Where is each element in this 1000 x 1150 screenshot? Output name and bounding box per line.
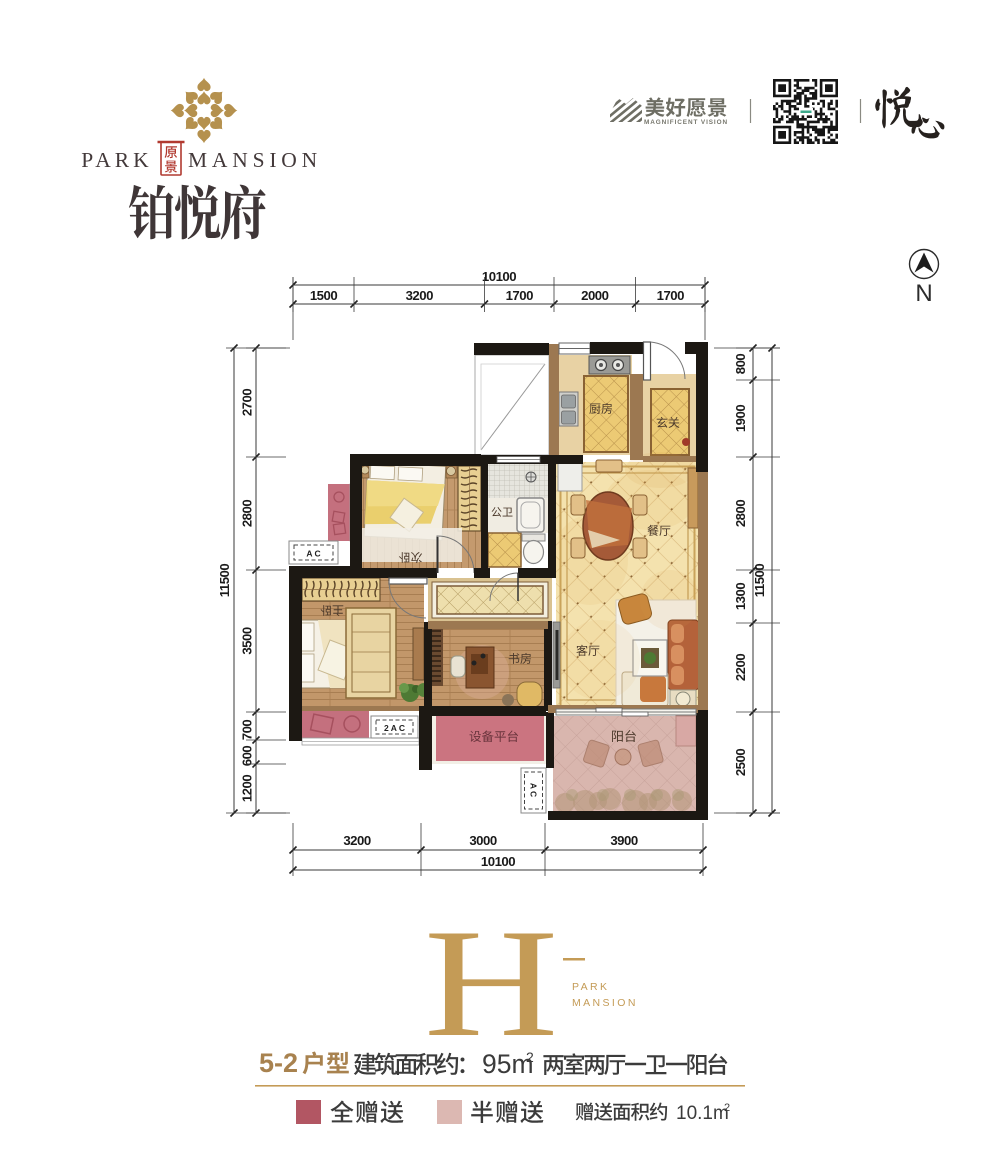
svg-text:1300: 1300 [733, 583, 748, 611]
svg-text:3200: 3200 [406, 288, 434, 303]
svg-text:10100: 10100 [481, 854, 515, 869]
svg-text:A C: A C [529, 783, 539, 797]
svg-text:1700: 1700 [657, 288, 685, 303]
svg-text:1900: 1900 [733, 405, 748, 433]
svg-text:3900: 3900 [610, 833, 638, 848]
svg-text:10100: 10100 [482, 269, 516, 284]
svg-text:N: N [915, 280, 932, 307]
svg-text:MANSION: MANSION [572, 997, 638, 1009]
svg-text:H: H [424, 897, 558, 1069]
svg-text:2800: 2800 [733, 500, 748, 528]
svg-text:A C: A C [306, 549, 320, 559]
svg-text:MAGNIFICENT VISION: MAGNIFICENT VISION [644, 119, 728, 126]
svg-text:2500: 2500 [733, 749, 748, 777]
svg-text:2800: 2800 [240, 500, 255, 528]
svg-text:3500: 3500 [240, 627, 255, 655]
svg-text:PARK: PARK [572, 981, 609, 993]
svg-text:2 A C: 2 A C [384, 723, 405, 733]
svg-text:11500: 11500 [752, 564, 767, 598]
svg-text:700: 700 [240, 720, 255, 741]
svg-text:1200: 1200 [240, 775, 255, 803]
svg-text:2: 2 [526, 1049, 534, 1065]
svg-text:5-2: 5-2 [259, 1048, 298, 1078]
svg-text:800: 800 [733, 354, 748, 375]
svg-text:MANSION: MANSION [188, 148, 322, 172]
svg-text:1700: 1700 [506, 288, 534, 303]
svg-text:2700: 2700 [240, 389, 255, 417]
svg-text:2: 2 [724, 1102, 730, 1114]
svg-text:PARK: PARK [81, 148, 152, 172]
svg-text:2200: 2200 [733, 654, 748, 682]
svg-text:600: 600 [240, 746, 255, 767]
svg-text:2000: 2000 [581, 288, 609, 303]
svg-text:1500: 1500 [310, 288, 338, 303]
svg-text:3000: 3000 [469, 833, 497, 848]
svg-text:11500: 11500 [217, 564, 232, 598]
svg-text:10.1m: 10.1m [676, 1103, 729, 1124]
svg-text:3200: 3200 [343, 833, 371, 848]
